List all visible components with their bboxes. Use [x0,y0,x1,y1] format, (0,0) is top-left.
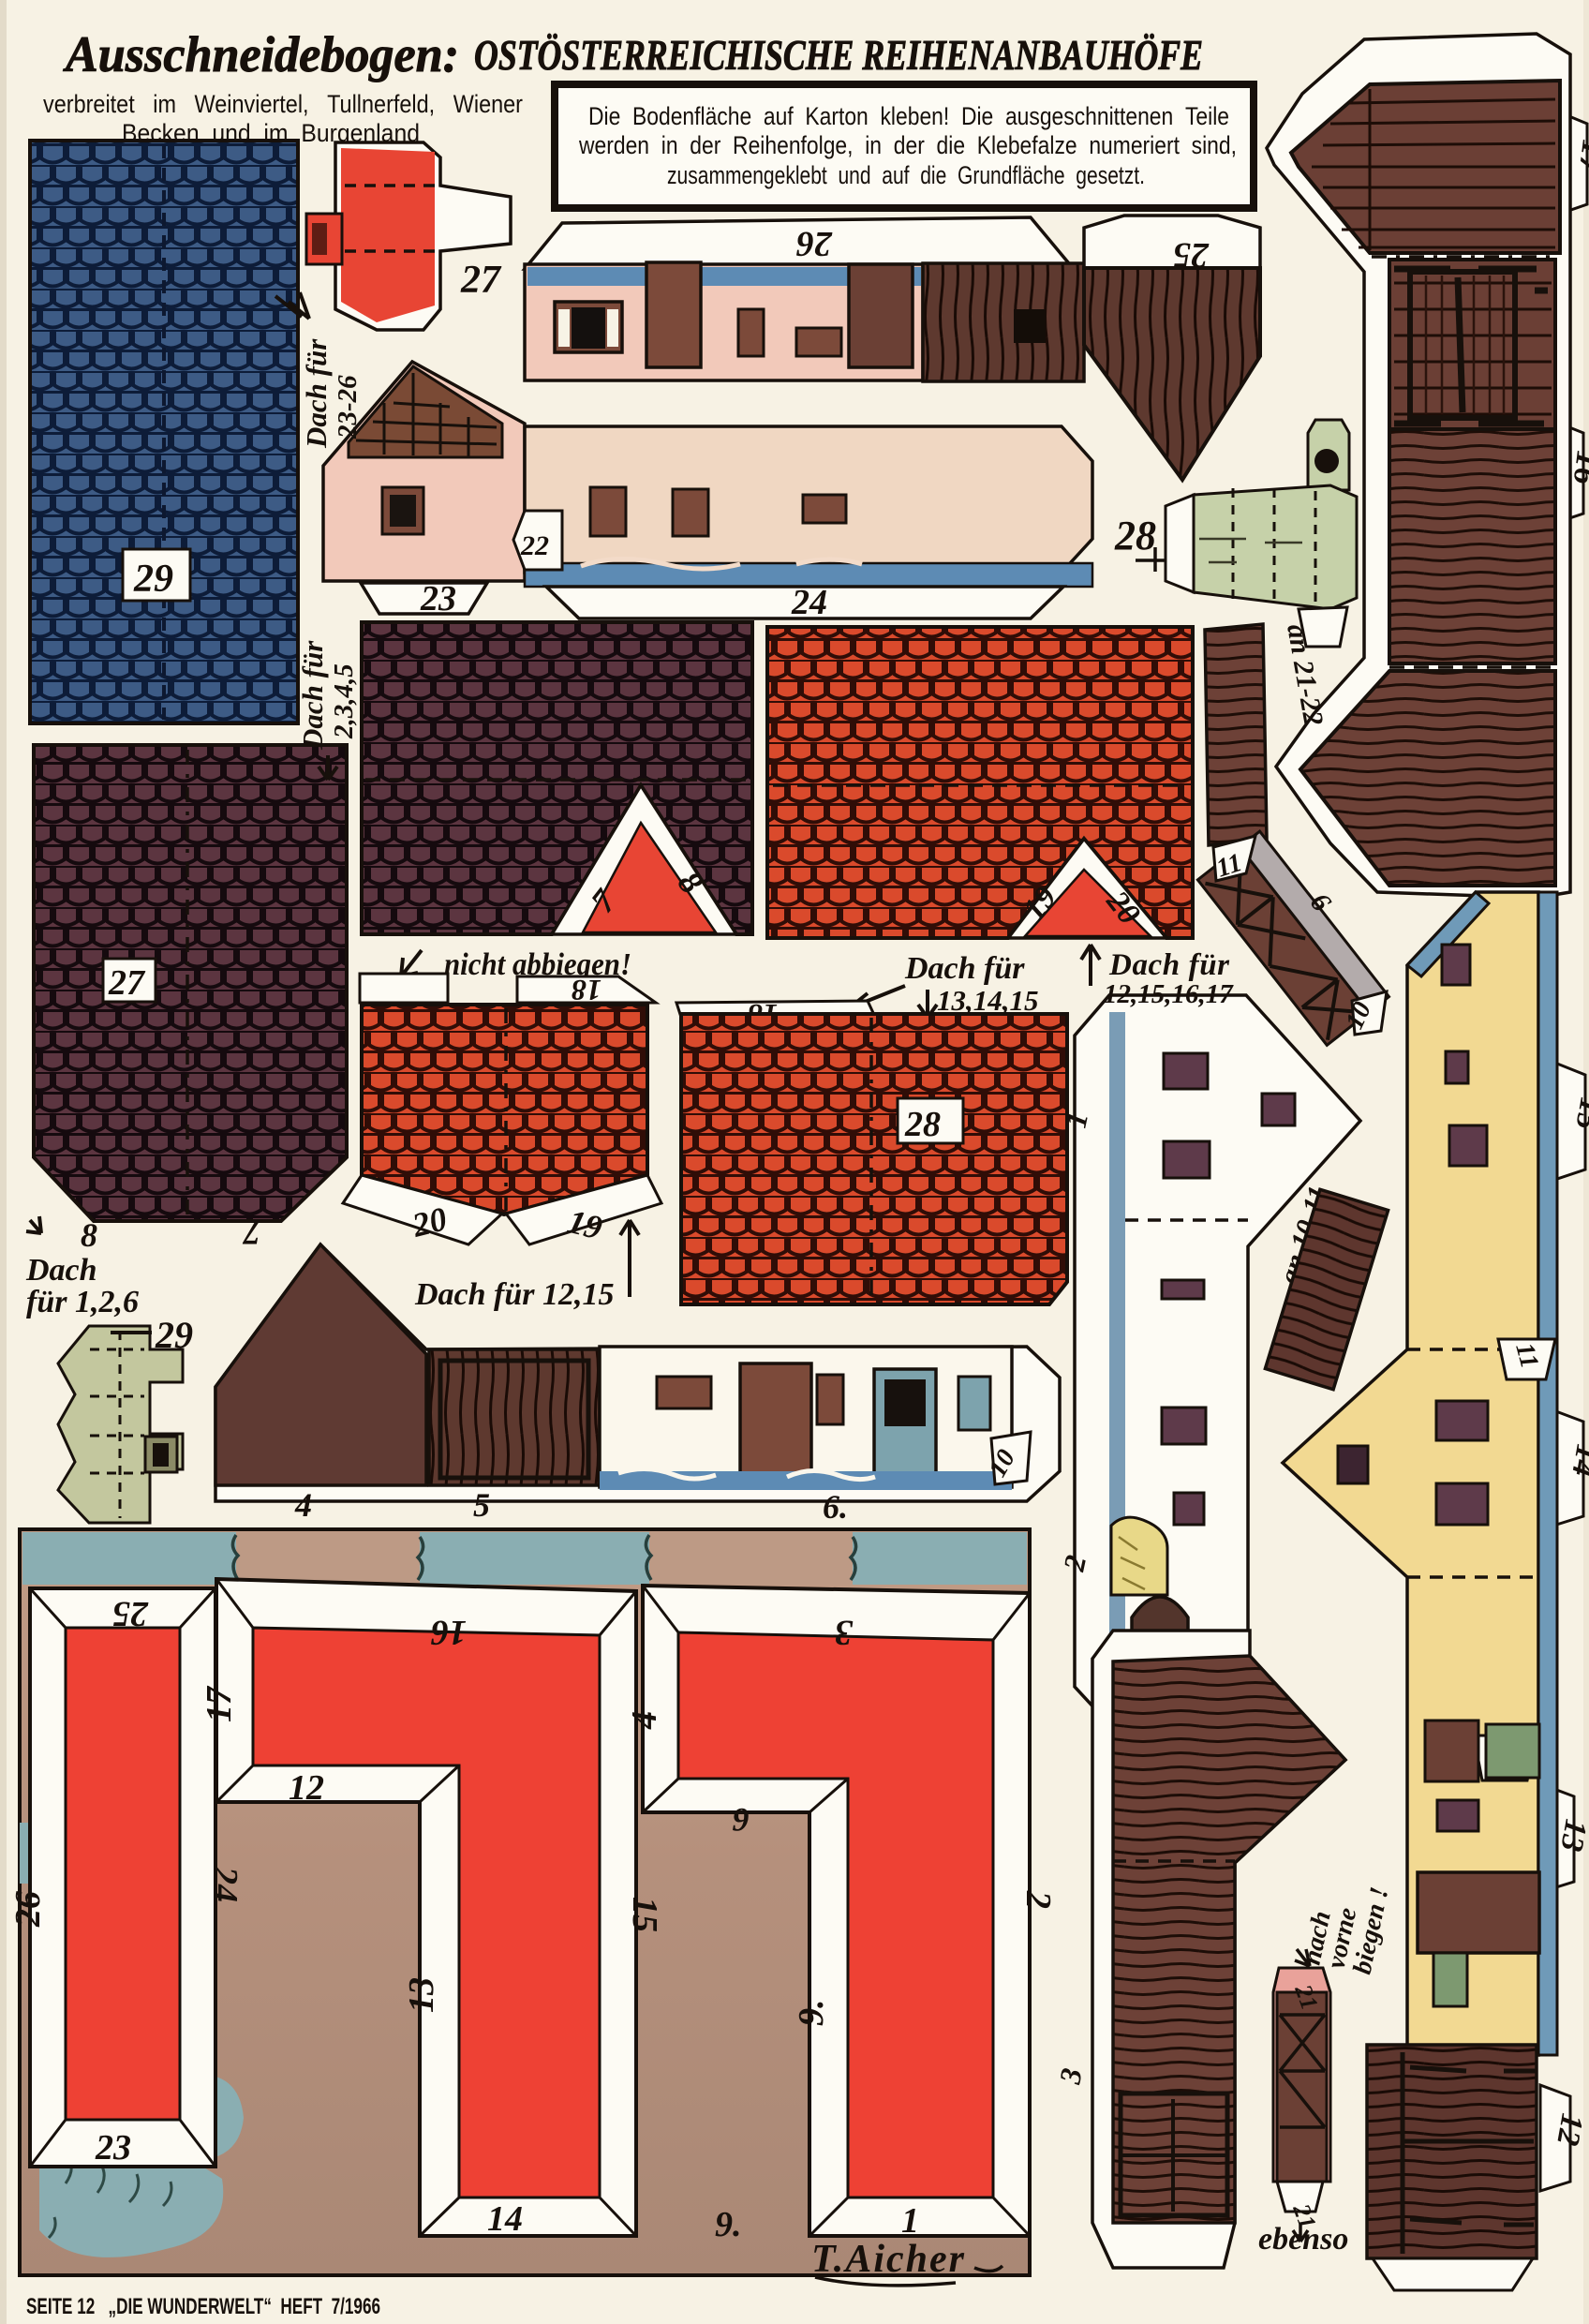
svg-text:verbreitet im Weinviertel,: verbreitet im Weinviertel, Tullnerfeld, … [43,90,523,118]
svg-text:Ausschneidebogen:: Ausschneidebogen: [63,26,459,82]
svg-text:SEITE 12 „DIE WUNDERWELT“ H: SEITE 12 „DIE WUNDERWELT“ HEFT 7/1966 [26,2294,380,2319]
svg-text:Dach für: Dach für [904,951,1025,986]
svg-text:27: 27 [460,259,502,302]
svg-text:OSTÖSTERREICHISCHE REIHENANBAU: OSTÖSTERREICHISCHE REIHENANBAUHÖFE [474,32,1203,79]
svg-text:2,3,4,5: 2,3,4,5 [329,663,359,739]
svg-text:4: 4 [294,1486,312,1524]
svg-text:28: 28 [1114,513,1156,559]
svg-text:15: 15 [625,1897,664,1932]
svg-text:2: 2 [1018,1890,1058,1909]
svg-text:zusammengeklebt und auf die: zusammengeklebt und auf die Grundfläche … [667,161,1145,189]
svg-text:22: 22 [520,530,549,561]
svg-text:29: 29 [155,1314,193,1356]
svg-text:28: 28 [904,1105,941,1144]
svg-text:für 1,2,6: für 1,2,6 [26,1285,139,1319]
svg-text:18: 18 [572,974,601,1007]
svg-text:Dach für 12,15: Dach für 12,15 [414,1277,615,1312]
svg-text:13,14,15: 13,14,15 [937,984,1039,1017]
svg-text:7: 7 [242,1214,260,1252]
svg-text:5: 5 [473,1486,490,1524]
svg-text:23: 23 [95,2128,131,2168]
svg-text:Dach für: Dach für [296,640,329,751]
svg-text:Dach für: Dach für [300,338,333,449]
svg-text:26: 26 [796,224,833,263]
svg-text:14: 14 [487,2199,523,2239]
svg-text:9.: 9. [792,2000,831,2027]
svg-text:Dach: Dach [25,1253,97,1288]
svg-text:23-26: 23-26 [333,375,363,439]
svg-text:Die Bodenfläche auf Karton: Die Bodenfläche auf Karton kleben! Die a… [588,102,1229,130]
svg-text:26: 26 [8,1891,48,1928]
svg-text:12,15,16,17: 12,15,16,17 [1104,979,1234,1009]
svg-text:8: 8 [81,1216,97,1254]
svg-text:T.Aicher: T.Aicher [811,2238,966,2281]
svg-text:werden in der Reihenfolge,: werden in der Reihenfolge, in der die Kl… [578,131,1237,159]
svg-text:24: 24 [205,1866,245,1902]
svg-text:16: 16 [1567,449,1589,487]
svg-text:9.: 9. [715,2205,742,2244]
svg-text:23: 23 [420,579,456,618]
svg-text:24: 24 [791,583,827,622]
svg-text:13: 13 [402,1977,441,2013]
svg-text:13: 13 [1553,1817,1589,1855]
svg-text:12: 12 [289,1768,324,1808]
svg-text:3: 3 [835,1613,854,1652]
svg-text:29: 29 [133,558,173,601]
svg-text:16: 16 [431,1613,467,1652]
svg-text:1: 1 [901,2201,919,2241]
svg-text:12: 12 [1550,2111,1589,2149]
svg-text:6: 6 [733,1801,750,1839]
svg-text:27: 27 [108,963,146,1003]
svg-text:6.: 6. [823,1488,848,1526]
svg-text:Dach für: Dach für [1108,948,1230,982]
svg-text:25: 25 [112,1594,149,1633]
svg-text:17: 17 [200,1685,239,1722]
svg-text:4: 4 [625,1711,664,1730]
